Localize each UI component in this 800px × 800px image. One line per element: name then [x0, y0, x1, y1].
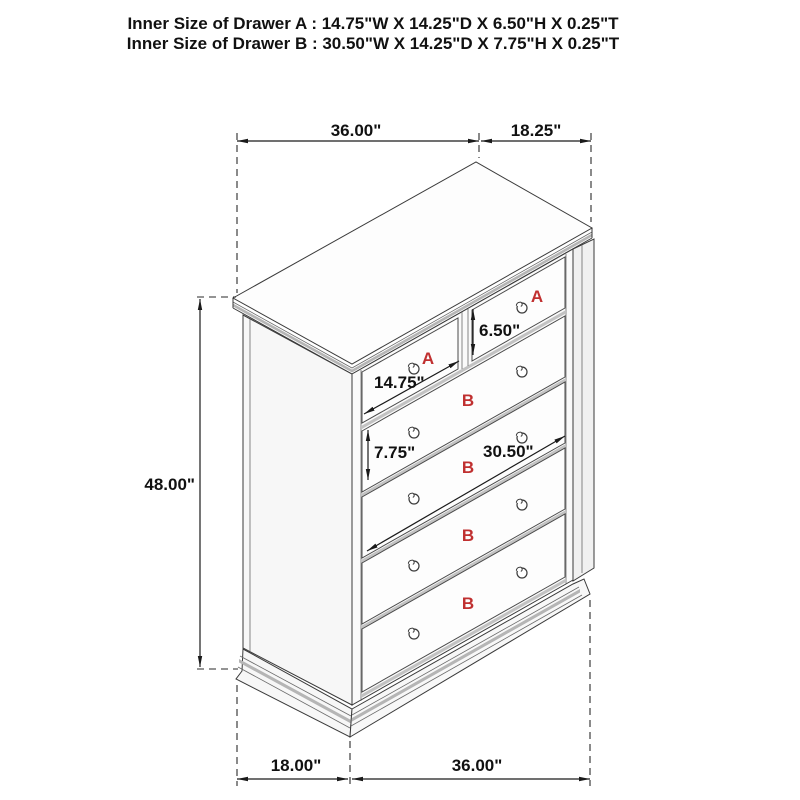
drawer-b1-label: B	[462, 391, 474, 410]
drawer-knob	[408, 493, 419, 504]
dim-top-width-label: 36.00"	[331, 121, 382, 140]
dim-top-depth-label: 18.25"	[511, 121, 562, 140]
drawer-knob	[408, 628, 419, 639]
right-side-face	[573, 239, 594, 581]
right-side-panel	[573, 239, 594, 581]
dim-bottom-depth-label: 18.00"	[271, 756, 322, 775]
dim-drawer-a-height-label: 6.50"	[479, 321, 520, 340]
drawer-b4-label: B	[462, 594, 474, 613]
header-specs: Inner Size of Drawer A : 14.75"W X 14.25…	[127, 14, 620, 53]
dim-drawer-b-width-label: 30.50"	[483, 442, 534, 461]
dim-drawer-b-height-label: 7.75"	[374, 443, 415, 462]
drawer-knob	[516, 366, 527, 377]
dim-drawer-a-width-label: 14.75"	[374, 373, 425, 392]
diagram-canvas: Inner Size of Drawer A : 14.75"W X 14.25…	[0, 0, 800, 800]
left-side-face	[243, 315, 352, 705]
drawer-knob	[516, 499, 527, 510]
drawer-b2-label: B	[462, 458, 474, 477]
drawer-knob	[408, 427, 419, 438]
left-side-panel	[243, 315, 352, 705]
drawer-a-right-label: A	[531, 287, 543, 306]
drawer-a-spec-text: Inner Size of Drawer A : 14.75"W X 14.25…	[127, 14, 619, 33]
drawer-b-spec-text: Inner Size of Drawer B : 30.50"W X 14.25…	[127, 34, 620, 53]
dim-bottom-width-label: 36.00"	[452, 756, 503, 775]
drawer-knob	[516, 567, 527, 578]
drawer-b3-label: B	[462, 526, 474, 545]
furniture-dimension-diagram: Inner Size of Drawer A : 14.75"W X 14.25…	[0, 0, 800, 800]
drawer-knob	[516, 302, 527, 313]
drawer-knob	[408, 560, 419, 571]
dim-height-label: 48.00"	[144, 475, 195, 494]
drawer-a-left-label: A	[422, 349, 434, 368]
